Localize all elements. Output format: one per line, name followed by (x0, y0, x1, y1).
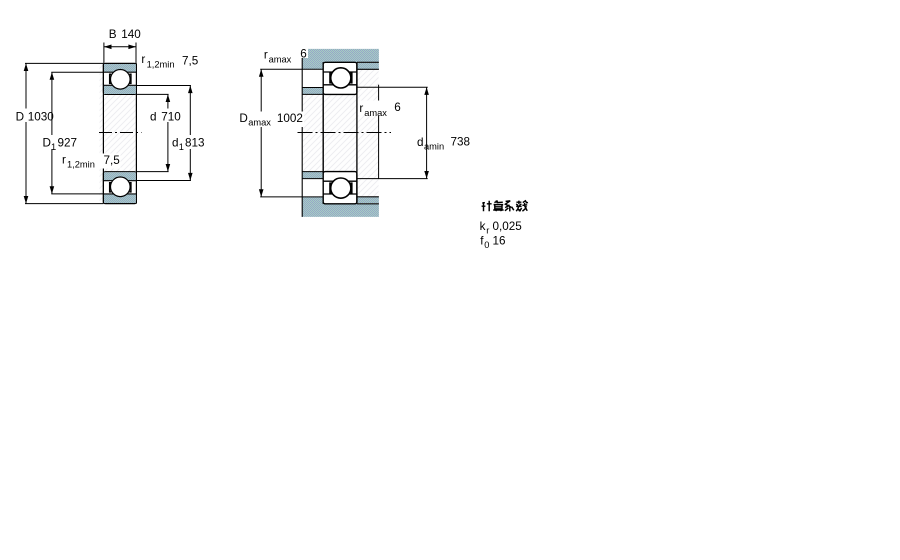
svg-text:r: r (359, 102, 363, 115)
svg-text:7,5: 7,5 (104, 154, 121, 167)
svg-text:D: D (43, 136, 51, 149)
svg-text:1,2min: 1,2min (147, 59, 175, 69)
svg-text:710: 710 (161, 110, 181, 123)
svg-text:6: 6 (394, 101, 401, 114)
svg-text:927: 927 (58, 136, 78, 149)
svg-text:amax: amax (248, 118, 271, 128)
svg-text:16: 16 (493, 235, 506, 248)
svg-text:amax: amax (364, 108, 387, 118)
svg-text:140: 140 (121, 28, 141, 41)
svg-text:6: 6 (300, 47, 307, 60)
svg-text:813: 813 (185, 136, 205, 149)
svg-text:d: d (172, 136, 179, 149)
svg-text:amax: amax (269, 54, 292, 64)
svg-text:0,025: 0,025 (493, 220, 523, 233)
svg-text:d: d (417, 136, 424, 149)
svg-text:1002: 1002 (277, 112, 303, 125)
svg-text:D: D (239, 112, 247, 125)
svg-text:1,2min: 1,2min (67, 160, 95, 170)
svg-text:r: r (141, 53, 145, 66)
svg-text:738: 738 (451, 136, 471, 149)
svg-text:k: k (480, 220, 486, 233)
svg-text:r: r (486, 225, 489, 235)
svg-text:B: B (109, 28, 117, 41)
svg-text:D: D (16, 110, 24, 123)
svg-text:0: 0 (484, 240, 489, 250)
svg-text:amin: amin (424, 142, 444, 152)
svg-text:7,5: 7,5 (182, 54, 199, 67)
svg-text:1: 1 (51, 142, 56, 152)
svg-text:r: r (62, 153, 66, 166)
svg-text:1030: 1030 (28, 110, 55, 123)
svg-text:d: d (150, 110, 157, 123)
svg-text:r: r (264, 48, 268, 61)
svg-text:1: 1 (179, 142, 184, 152)
